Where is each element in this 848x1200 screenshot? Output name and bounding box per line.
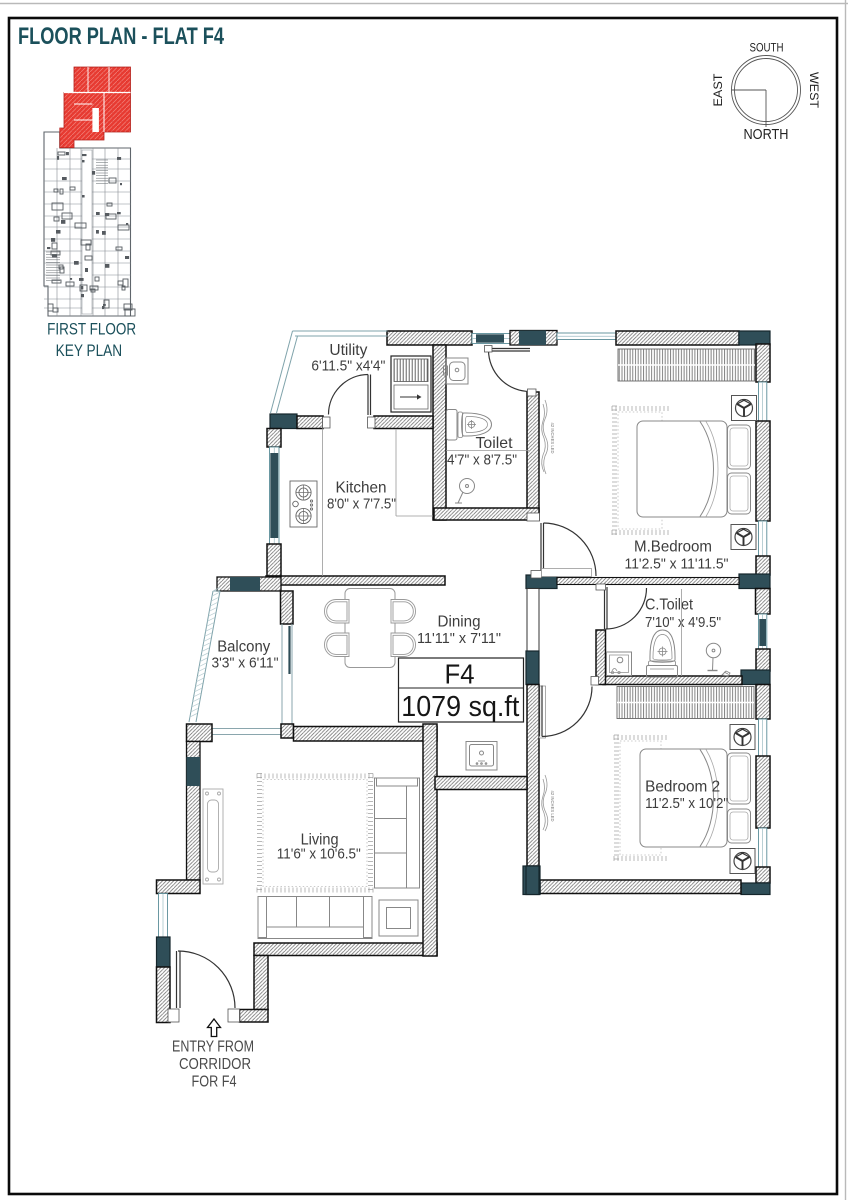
svg-text:42 INCHES LED: 42 INCHES LED [550, 791, 555, 822]
svg-text:6'11.5" x4'4": 6'11.5" x4'4" [311, 358, 385, 375]
svg-text:11'11" x 7'11": 11'11" x 7'11" [417, 630, 501, 647]
svg-text:FOR F4: FOR F4 [192, 1074, 237, 1091]
svg-text:3'3" x 6'11": 3'3" x 6'11" [212, 655, 279, 672]
svg-text:7'10" x 4'9.5": 7'10" x 4'9.5" [645, 614, 721, 631]
svg-text:WEST: WEST [807, 72, 819, 108]
svg-text:Dining: Dining [438, 614, 481, 631]
svg-text:ENTRY FROM: ENTRY FROM [172, 1039, 254, 1056]
svg-text:8'0" x 7'7.5": 8'0" x 7'7.5" [327, 496, 396, 513]
svg-text:M.Bedroom: M.Bedroom [634, 539, 712, 556]
svg-text:Utility: Utility [329, 342, 367, 359]
svg-text:Kitchen: Kitchen [336, 480, 387, 497]
svg-text:Toilet: Toilet [476, 435, 514, 452]
svg-text:FIRST FLOOR: FIRST FLOOR [47, 321, 136, 339]
svg-text:42 INCHES LED: 42 INCHES LED [550, 423, 555, 454]
svg-text:KEY PLAN: KEY PLAN [56, 342, 123, 360]
svg-text:FLOOR PLAN - FLAT F4: FLOOR PLAN - FLAT F4 [18, 23, 224, 50]
svg-text:Balcony: Balcony [217, 639, 270, 656]
svg-text:SOUTH: SOUTH [750, 43, 784, 55]
svg-text:C.Toilet: C.Toilet [645, 597, 693, 614]
svg-text:11'2.5" x 10'2": 11'2.5" x 10'2" [645, 795, 728, 812]
svg-text:1079 sq.ft: 1079 sq.ft [401, 691, 519, 723]
svg-text:Bedroom 2: Bedroom 2 [645, 779, 720, 796]
svg-text:CORRIDOR: CORRIDOR [179, 1056, 251, 1073]
svg-text:EAST: EAST [713, 74, 725, 107]
svg-text:4'7" x 8'7.5": 4'7" x 8'7.5" [447, 452, 517, 469]
svg-text:11'2.5" x 11'11.5": 11'2.5" x 11'11.5" [625, 556, 729, 573]
svg-text:NORTH: NORTH [744, 127, 789, 143]
svg-text:F4: F4 [445, 659, 475, 690]
svg-text:11'6" x 10'6.5": 11'6" x 10'6.5" [277, 846, 361, 863]
